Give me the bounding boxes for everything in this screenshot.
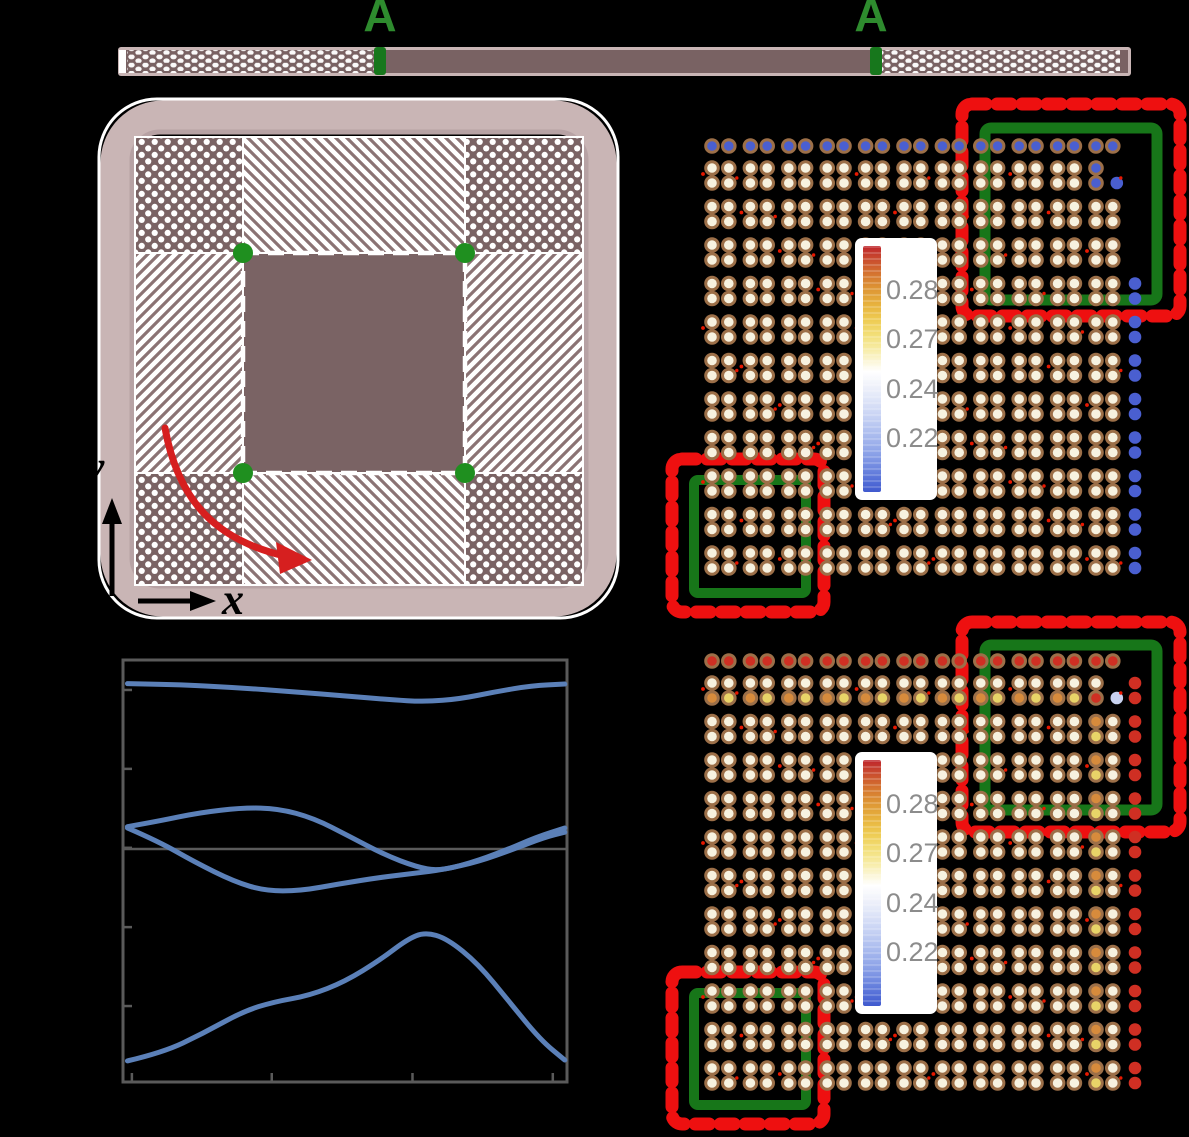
cell-x-axis-label: x (222, 578, 244, 622)
section-label-a-right: A (846, 0, 896, 38)
colorbar-upper: 0.28 0.27 0.24 0.22 (855, 238, 937, 500)
colorbar-tick: 0.22 (886, 425, 936, 451)
colorbar-tick: 0.28 (886, 791, 936, 817)
colorbar-tick: 0.22 (886, 939, 936, 965)
colorbar-tick: 0.27 (886, 840, 936, 866)
cell-y-axis-label: y (84, 444, 104, 490)
colorbar-tick: 0.28 (886, 277, 936, 303)
section-label-a-left: A (355, 0, 405, 38)
unit-cell-diagram (80, 80, 640, 640)
colorbar-gradient (863, 246, 881, 492)
colorbar-tick: 0.27 (886, 326, 936, 352)
colorbar-lower: 0.28 0.27 0.24 0.22 (855, 752, 937, 1014)
figure-root: A A x y x 0.28 0.27 0.24 0.22 0.28 0.27 … (0, 0, 1189, 1137)
band-structure-plot (90, 640, 600, 1100)
colorbar-gradient (863, 760, 881, 1006)
colorbar-tick: 0.24 (886, 890, 936, 916)
colorbar-tick: 0.24 (886, 376, 936, 402)
